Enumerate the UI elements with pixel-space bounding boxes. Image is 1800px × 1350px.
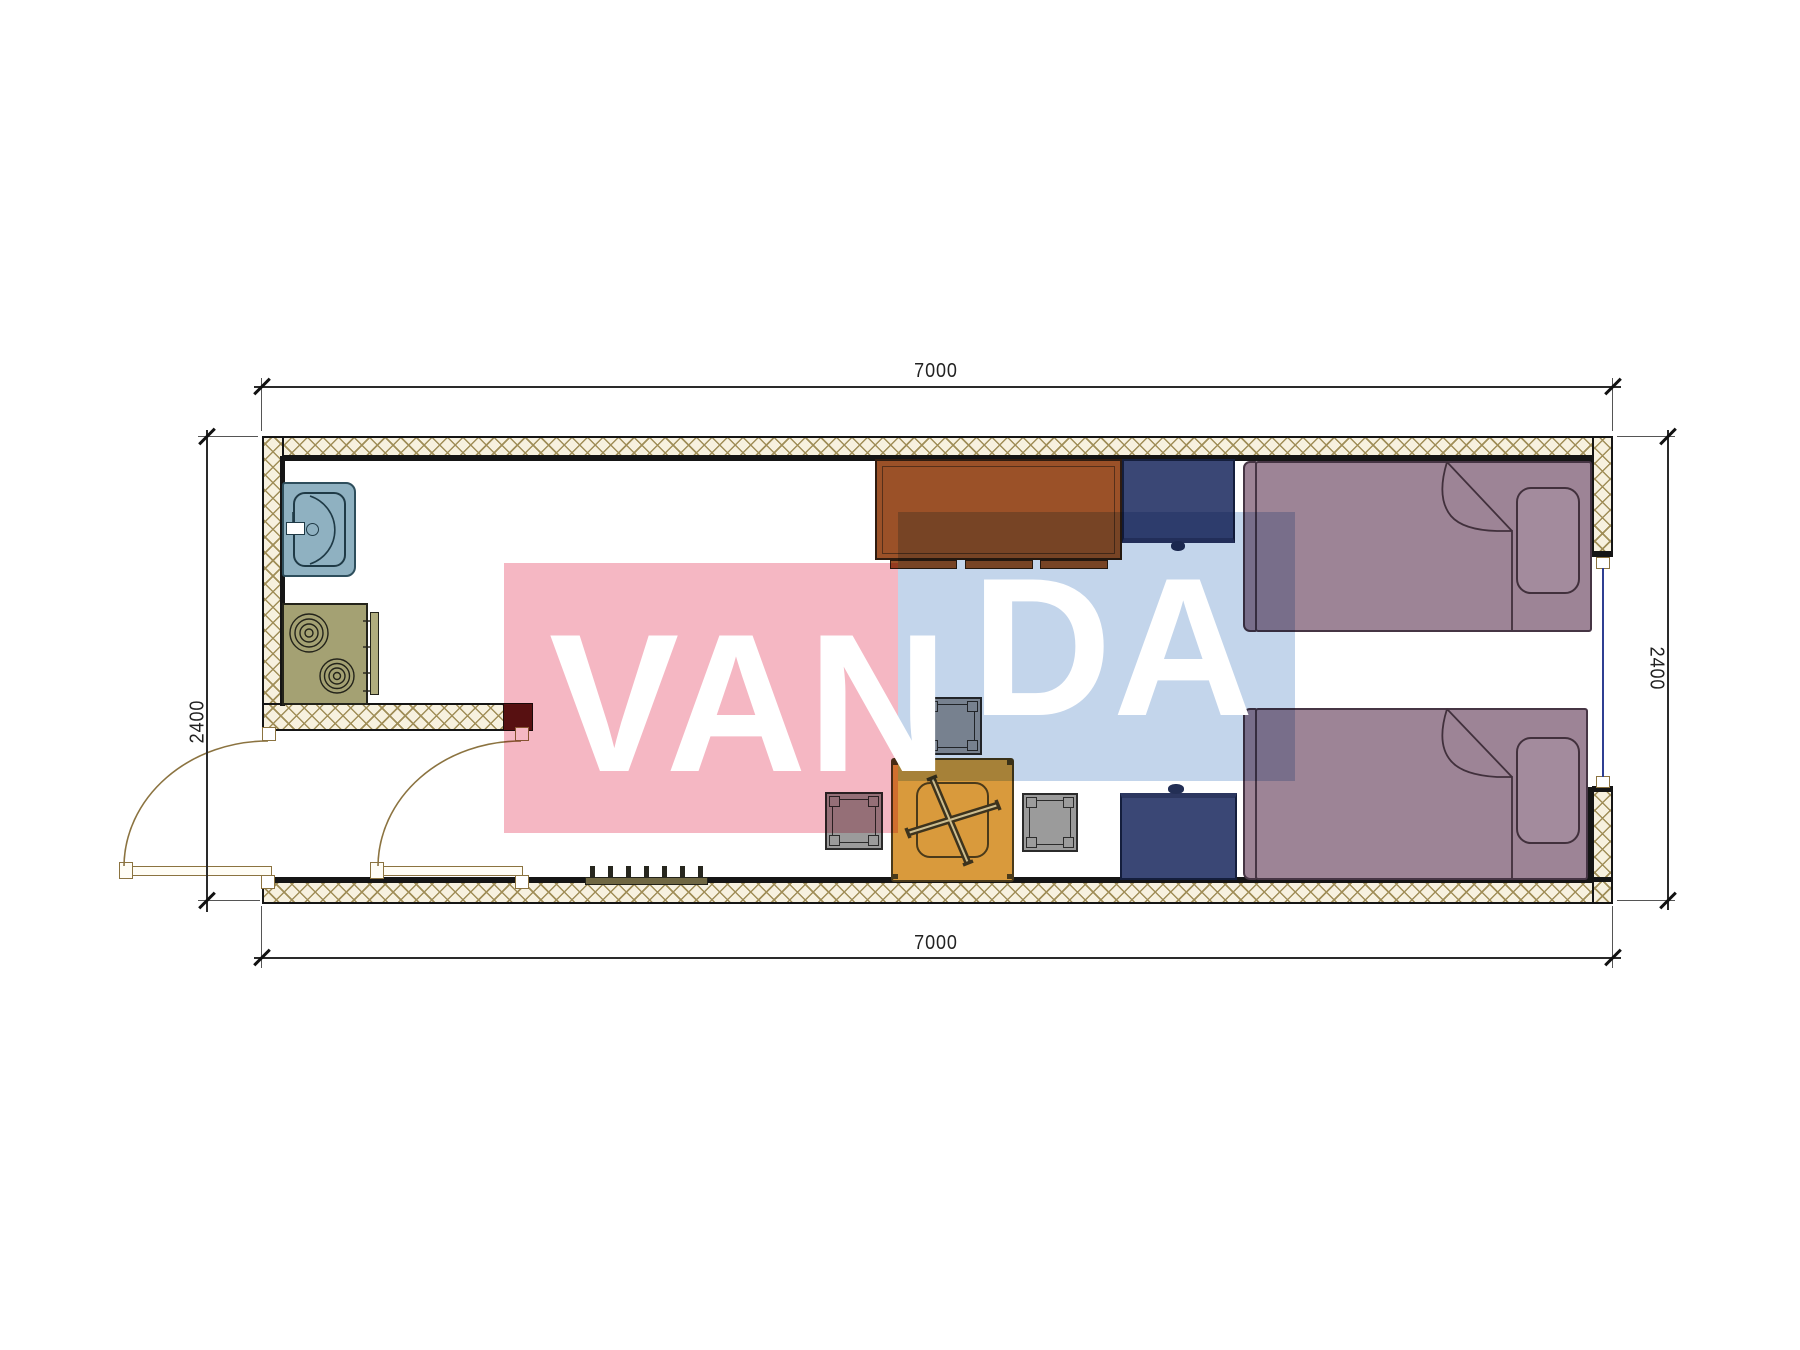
floor-plan-canvas: VAN DA 7000 7000 2400 2400 — [0, 0, 1800, 1350]
sink-bowl-curve — [310, 496, 335, 564]
dim-label-right: 2400 — [1645, 615, 1668, 723]
door-swing-arc-interior — [378, 741, 521, 866]
bed-top-blanket-fold — [1442, 462, 1512, 630]
dim-label-top: 7000 — [882, 360, 990, 383]
dim-label-bottom: 7000 — [882, 932, 990, 955]
bed-bottom-blanket-fold — [1442, 709, 1512, 878]
dim-label-left: 2400 — [187, 668, 210, 776]
dim-line-bottom — [254, 957, 1621, 959]
watermark-text-da: DA — [971, 549, 1255, 746]
stove-burner-large — [290, 614, 328, 652]
dim-line-top — [254, 386, 1621, 388]
stove-control-ticks — [363, 621, 371, 691]
watermark-text-van: VAN — [549, 605, 949, 802]
stove-burner-small — [320, 659, 354, 693]
